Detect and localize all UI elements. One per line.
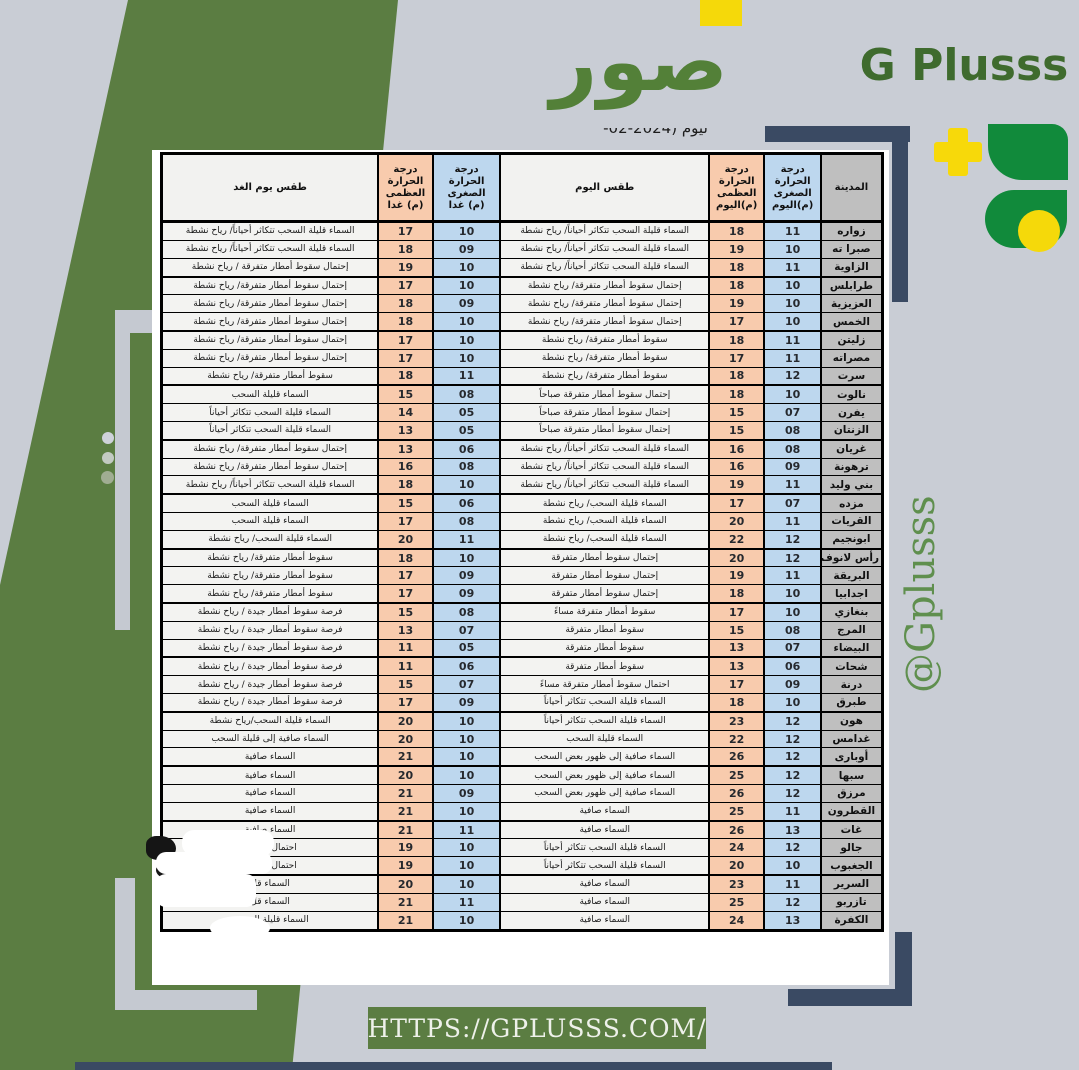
cell-today-weather: سقوط أمطار متفرقة/ رياح نشطة (500, 331, 708, 349)
frame-bracket-bottom-left-h (115, 990, 257, 1010)
cell-today-min: 13 (764, 821, 820, 839)
cell-tomorrow-weather: السماء قليلة السحب تتكاثر أحياناً (162, 421, 379, 439)
cell-today-weather: إحتمال سقوط أمطار متفرقة صباحاً (500, 385, 708, 403)
cell-today-max: 26 (709, 748, 764, 766)
cropped-date-fragment: ليوم (2024-02- (368, 128, 708, 150)
cell-tomorrow-max: 20 (378, 530, 432, 548)
cell-today-max: 18 (709, 277, 764, 295)
deco-dot-3 (101, 471, 114, 484)
cell-tomorrow-min: 09 (433, 585, 501, 603)
cell-tomorrow-max: 21 (378, 893, 432, 911)
cell-tomorrow-weather: فرصة سقوط أمطار جيدة / رياح نشطة (162, 693, 379, 711)
cell-city: المرج (821, 621, 883, 639)
cell-today-min: 10 (764, 585, 820, 603)
cell-tomorrow-weather: السماء قليلة السحب (162, 494, 379, 512)
cell-tomorrow-weather: سقوط أمطار متفرقة/ رياح نشطة (162, 585, 379, 603)
cell-today-weather: السماء قليلة السحب/ رياح نشطة (500, 530, 708, 548)
cell-tomorrow-weather: فرصة سقوط أمطار جيدة / رياح نشطة (162, 657, 379, 675)
header-city: المدينة (821, 154, 883, 222)
cell-today-min: 08 (764, 621, 820, 639)
logo-plus-icon-vertical (948, 128, 968, 176)
cell-tomorrow-weather: السماء قليلة السحب (162, 385, 379, 403)
cell-today-max: 22 (709, 530, 764, 548)
white-eraser-blob-4 (210, 916, 270, 940)
cell-tomorrow-min: 06 (433, 440, 501, 458)
cell-tomorrow-min: 06 (433, 657, 501, 675)
cell-today-max: 25 (709, 893, 764, 911)
cell-today-max: 17 (709, 676, 764, 694)
cell-today-min: 12 (764, 367, 820, 385)
cell-city: البريقة (821, 567, 883, 585)
cell-tomorrow-weather: إحتمال سقوط أمطار متفرقة / رياح نشطة (162, 258, 379, 276)
cell-tomorrow-max: 20 (378, 730, 432, 748)
cell-today-weather: إحتمال سقوط أمطار متفرقة/ رياح نشطة (500, 313, 708, 331)
cell-tomorrow-max: 13 (378, 440, 432, 458)
cell-tomorrow-max: 16 (378, 458, 432, 476)
cell-today-min: 11 (764, 349, 820, 367)
cell-tomorrow-max: 17 (378, 513, 432, 531)
cell-tomorrow-min: 10 (433, 802, 501, 820)
cell-tomorrow-min: 11 (433, 893, 501, 911)
cell-today-min: 08 (764, 440, 820, 458)
table-row: طرابلس 10 18 إحتمال سقوط أمطار متفرقة/ ر… (162, 277, 883, 295)
cell-tomorrow-weather: السماء قليلة السحب تتكاثر أحياناً/ رياح … (162, 476, 379, 494)
cell-today-max: 19 (709, 240, 764, 258)
cell-city: القريات (821, 513, 883, 531)
cell-today-max: 15 (709, 421, 764, 439)
table-row: مرزق 12 26 السماء صافية إلى ظهور بعض الس… (162, 785, 883, 803)
cell-today-max: 24 (709, 839, 764, 857)
cell-today-min: 11 (764, 875, 820, 893)
table-row: السرير 11 23 السماء صافية 10 20 السماء ق… (162, 875, 883, 893)
cell-today-max: 26 (709, 785, 764, 803)
cell-today-weather: السماء قليلة السحب تتكاثر أحياناً/ رياح … (500, 476, 708, 494)
cell-tomorrow-max: 11 (378, 657, 432, 675)
cell-today-weather: إحتمال سقوط أمطار متفرقة/ رياح نشطة (500, 295, 708, 313)
cell-tomorrow-min: 10 (433, 839, 501, 857)
frame-bracket-top-right-v (892, 126, 908, 302)
cell-tomorrow-max: 20 (378, 766, 432, 784)
cell-tomorrow-min: 10 (433, 748, 501, 766)
cell-tomorrow-max: 14 (378, 404, 432, 422)
cell-tomorrow-max: 11 (378, 639, 432, 657)
cell-tomorrow-weather: فرصة سقوط أمطار جيدة / رياح نشطة (162, 603, 379, 621)
cell-tomorrow-min: 10 (433, 911, 501, 930)
cell-tomorrow-weather: السماء صافية (162, 802, 379, 820)
cell-today-min: 11 (764, 222, 820, 241)
cell-today-weather: إحتمال سقوط أمطار متفرقة صباحاً (500, 421, 708, 439)
header-tomorrow-max: درجة الحرارة العظمى (م) غدا (378, 154, 432, 222)
table-row: القطرون 11 25 السماء صافية 10 21 السماء … (162, 802, 883, 820)
cell-tomorrow-min: 09 (433, 295, 501, 313)
cell-city: مصراته (821, 349, 883, 367)
cell-today-weather: السماء صافية إلى ظهور بعض السحب (500, 766, 708, 784)
cell-tomorrow-min: 05 (433, 639, 501, 657)
cell-today-min: 12 (764, 730, 820, 748)
cell-today-min: 07 (764, 494, 820, 512)
cell-tomorrow-min: 05 (433, 404, 501, 422)
cell-today-max: 17 (709, 494, 764, 512)
cell-tomorrow-weather: السماء صافية (162, 766, 379, 784)
cell-today-min: 11 (764, 802, 820, 820)
cell-today-max: 18 (709, 585, 764, 603)
cell-tomorrow-weather: إحتمال سقوط أمطار متفرقة/ رياح نشطة (162, 331, 379, 349)
frame-bracket-bottom-right-h (788, 989, 912, 1006)
cell-today-max: 18 (709, 222, 764, 241)
table-row: البيضاء 07 13 سقوط أمطار متفرقة 05 11 فر… (162, 639, 883, 657)
cell-tomorrow-max: 18 (378, 367, 432, 385)
table-row: العزيزية 10 19 إحتمال سقوط أمطار متفرقة/… (162, 295, 883, 313)
cell-tomorrow-max: 20 (378, 875, 432, 893)
cell-tomorrow-max: 15 (378, 676, 432, 694)
cell-tomorrow-weather: فرصة سقوط أمطار جيدة / رياح نشطة (162, 621, 379, 639)
cell-today-min: 08 (764, 421, 820, 439)
cell-tomorrow-weather: سقوط أمطار متفرقة/ رياح نشطة (162, 367, 379, 385)
cell-tomorrow-min: 10 (433, 730, 501, 748)
cell-tomorrow-min: 05 (433, 421, 501, 439)
cell-tomorrow-max: 17 (378, 567, 432, 585)
table-row: صبرا ته 10 19 السماء قليلة السحب تتكاثر … (162, 240, 883, 258)
cell-tomorrow-min: 07 (433, 621, 501, 639)
cell-today-weather: السماء قليلة السحب تتكاثر أحياناً (500, 839, 708, 857)
cell-tomorrow-max: 17 (378, 277, 432, 295)
cell-today-weather: السماء قليلة السحب تتكاثر أحياناً/ رياح … (500, 440, 708, 458)
cell-today-weather: السماء قليلة السحب/ رياح نشطة (500, 513, 708, 531)
cell-tomorrow-max: 18 (378, 295, 432, 313)
table-row: الزنتان 08 15 إحتمال سقوط أمطار متفرقة ص… (162, 421, 883, 439)
cell-tomorrow-max: 18 (378, 476, 432, 494)
cell-today-weather: سقوط أمطار متفرقة مساءً (500, 603, 708, 621)
cell-today-weather: السماء قليلة السحب/ رياح نشطة (500, 494, 708, 512)
cell-tomorrow-min: 10 (433, 331, 501, 349)
poster-canvas: صور G Plusss @Gplusss ليوم (2024-02- الم… (0, 0, 1079, 1070)
cell-tomorrow-max: 15 (378, 385, 432, 403)
cell-tomorrow-weather: إحتمال سقوط أمطار متفرقة/ رياح نشطة (162, 440, 379, 458)
cell-today-max: 18 (709, 331, 764, 349)
cell-tomorrow-min: 10 (433, 258, 501, 276)
site-word-arabic: صور (558, 22, 728, 104)
table-row: درنة 09 17 احتمال سقوط أمطار متفرقة مساء… (162, 676, 883, 694)
table-row: غدامس 12 22 السماء قليلة السحب 10 20 الس… (162, 730, 883, 748)
cell-tomorrow-min: 08 (433, 385, 501, 403)
cell-tomorrow-max: 18 (378, 313, 432, 331)
cell-today-min: 07 (764, 639, 820, 657)
cell-tomorrow-weather: السماء قليلة السحب/ رياح نشطة (162, 530, 379, 548)
cell-today-min: 11 (764, 567, 820, 585)
cell-today-max: 19 (709, 567, 764, 585)
cell-tomorrow-max: 19 (378, 839, 432, 857)
cell-tomorrow-max: 18 (378, 240, 432, 258)
cell-tomorrow-min: 10 (433, 549, 501, 567)
cell-today-min: 10 (764, 277, 820, 295)
cell-city: الزاوية (821, 258, 883, 276)
header-today-min: درجة الحرارة الصغرى (م)اليوم (764, 154, 820, 222)
cell-tomorrow-max: 17 (378, 222, 432, 241)
frame-bracket-bottom-left-v (115, 878, 135, 1008)
table-row: بنغازي 10 17 سقوط أمطار متفرقة مساءً 08 … (162, 603, 883, 621)
cell-city: بنغازي (821, 603, 883, 621)
cell-tomorrow-max: 21 (378, 785, 432, 803)
table-row: اجدابيا 10 18 إحتمال سقوط أمطار متفرقة 0… (162, 585, 883, 603)
cell-today-max: 19 (709, 476, 764, 494)
deco-dot-2 (102, 452, 114, 464)
cell-today-weather: سقوط أمطار متفرقة (500, 639, 708, 657)
cell-today-weather: السماء قليلة السحب تتكاثر أحياناً/ رياح … (500, 458, 708, 476)
cell-tomorrow-weather: إحتمال سقوط أمطار متفرقة/ رياح نشطة (162, 313, 379, 331)
site-name: G Plusss (850, 40, 1078, 91)
cell-today-max: 18 (709, 258, 764, 276)
cell-today-max: 23 (709, 875, 764, 893)
table-row: ابونجيم 12 22 السماء قليلة السحب/ رياح ن… (162, 530, 883, 548)
cell-tomorrow-weather: السماء قليلة السحب تتكاثر أحياناً (162, 404, 379, 422)
table-row: المرج 08 15 سقوط أمطار متفرقة 07 13 فرصة… (162, 621, 883, 639)
cell-city: سبها (821, 766, 883, 784)
cell-today-min: 10 (764, 385, 820, 403)
header-today-weather: طقس اليوم (500, 154, 708, 222)
cell-tomorrow-weather: السماء قليلة السحب/رياح نشطة (162, 712, 379, 730)
cell-city: سرت (821, 367, 883, 385)
cell-today-max: 20 (709, 857, 764, 875)
cell-today-min: 10 (764, 603, 820, 621)
table-row: البريقة 11 19 إحتمال سقوط أمطار متفرقة 0… (162, 567, 883, 585)
cell-city: اجدابيا (821, 585, 883, 603)
cell-today-weather: إحتمال سقوط أمطار متفرقة (500, 549, 708, 567)
cell-tomorrow-max: 21 (378, 911, 432, 930)
cell-today-weather: السماء قليلة السحب تتكاثر أحياناً/ رياح … (500, 258, 708, 276)
cell-today-weather: السماء صافية (500, 911, 708, 930)
table-row: هون 12 23 السماء قليلة السحب تتكاثر أحيا… (162, 712, 883, 730)
cell-tomorrow-min: 09 (433, 240, 501, 258)
cell-today-min: 10 (764, 240, 820, 258)
weather-table: المدينة درجة الحرارة الصغرى (م)اليوم درج… (160, 152, 884, 932)
cell-tomorrow-min: 07 (433, 676, 501, 694)
table-row: القريات 11 20 السماء قليلة السحب/ رياح ن… (162, 513, 883, 531)
cell-today-weather: إحتمال سقوط أمطار متفرقة (500, 567, 708, 585)
cell-city: رأس لانوف (821, 549, 883, 567)
header-today-max: درجة الحرارة العظمى (م)اليوم (709, 154, 764, 222)
cell-today-max: 13 (709, 639, 764, 657)
cell-tomorrow-weather: إحتمال سقوط أمطار متفرقة/ رياح نشطة (162, 458, 379, 476)
table-row: سرت 12 18 سقوط أمطار متفرقة/ رياح نشطة 1… (162, 367, 883, 385)
cell-today-min: 12 (764, 712, 820, 730)
cell-city: جالو (821, 839, 883, 857)
cell-tomorrow-weather: فرصة سقوط أمطار جيدة / رياح نشطة (162, 639, 379, 657)
weather-table-wrap: المدينة درجة الحرارة الصغرى (م)اليوم درج… (160, 152, 884, 932)
cell-city: السرير (821, 875, 883, 893)
cell-today-weather: سقوط أمطار متفرقة/ رياح نشطة (500, 367, 708, 385)
cell-today-max: 16 (709, 440, 764, 458)
social-handle: @Gplusss (898, 458, 944, 693)
cell-today-min: 12 (764, 748, 820, 766)
cell-city: شحات (821, 657, 883, 675)
logo-yellow-chip (700, 0, 742, 26)
cell-tomorrow-min: 09 (433, 567, 501, 585)
cell-today-min: 10 (764, 295, 820, 313)
white-eraser-blob-3 (156, 874, 256, 907)
cell-today-max: 26 (709, 821, 764, 839)
cell-city: درنة (821, 676, 883, 694)
cell-tomorrow-min: 10 (433, 349, 501, 367)
cell-today-weather: السماء قليلة السحب تتكاثر أحياناً/ رياح … (500, 222, 708, 241)
cell-city: هون (821, 712, 883, 730)
cell-today-min: 11 (764, 331, 820, 349)
cell-tomorrow-min: 06 (433, 494, 501, 512)
cell-today-min: 12 (764, 530, 820, 548)
cell-tomorrow-min: 08 (433, 603, 501, 621)
cell-today-max: 13 (709, 657, 764, 675)
cell-today-min: 11 (764, 258, 820, 276)
cell-today-min: 10 (764, 857, 820, 875)
cell-today-weather: السماء صافية (500, 893, 708, 911)
header-tomorrow-min: درجة الحرارة الصغرى (م) غدا (433, 154, 501, 222)
cell-tomorrow-weather: السماء صافية إلى قليلة السحب (162, 730, 379, 748)
cell-today-max: 25 (709, 766, 764, 784)
table-row: يفرن 07 15 إحتمال سقوط أمطار متفرقة صباح… (162, 404, 883, 422)
cell-tomorrow-max: 17 (378, 693, 432, 711)
cell-city: القطرون (821, 802, 883, 820)
cell-tomorrow-weather: فرصة سقوط أمطار جيدة / رياح نشطة (162, 676, 379, 694)
cell-today-max: 20 (709, 549, 764, 567)
cell-tomorrow-min: 10 (433, 857, 501, 875)
cell-tomorrow-max: 19 (378, 857, 432, 875)
table-row: زليتن 11 18 سقوط أمطار متفرقة/ رياح نشطة… (162, 331, 883, 349)
cell-today-min: 09 (764, 676, 820, 694)
frame-bracket-top-right-h (765, 126, 910, 142)
cell-tomorrow-weather: السماء صافية (162, 785, 379, 803)
cell-today-max: 17 (709, 349, 764, 367)
cell-today-weather: السماء قليلة السحب تتكاثر أحياناً (500, 857, 708, 875)
cell-today-weather: السماء صافية (500, 821, 708, 839)
cell-city: ابونجيم (821, 530, 883, 548)
cell-tomorrow-min: 08 (433, 513, 501, 531)
cell-today-max: 18 (709, 367, 764, 385)
cell-tomorrow-weather: إحتمال سقوط أمطار متفرقة/ رياح نشطة (162, 295, 379, 313)
cell-today-max: 16 (709, 458, 764, 476)
cell-city: بني وليد (821, 476, 883, 494)
cell-today-min: 11 (764, 513, 820, 531)
cell-tomorrow-max: 17 (378, 331, 432, 349)
table-row: زواره 11 18 السماء قليلة السحب تتكاثر أح… (162, 222, 883, 241)
cell-tomorrow-min: 09 (433, 785, 501, 803)
bottom-navy-strip (75, 1062, 832, 1070)
cell-city: زواره (821, 222, 883, 241)
cell-tomorrow-max: 18 (378, 549, 432, 567)
cell-today-max: 18 (709, 385, 764, 403)
cell-today-min: 13 (764, 911, 820, 930)
cell-tomorrow-max: 13 (378, 421, 432, 439)
table-body: زواره 11 18 السماء قليلة السحب تتكاثر أح… (162, 222, 883, 931)
logo-green-shape-top (988, 124, 1068, 180)
frame-bracket-top-left-v (115, 310, 130, 630)
cell-tomorrow-min: 10 (433, 476, 501, 494)
table-row: أوبارى 12 26 السماء صافية إلى ظهور بعض ا… (162, 748, 883, 766)
cell-city: مرزق (821, 785, 883, 803)
header-tomorrow-weather: طقس يوم الغد (162, 154, 379, 222)
cell-city: ترهونة (821, 458, 883, 476)
cell-tomorrow-max: 17 (378, 349, 432, 367)
cell-today-min: 12 (764, 549, 820, 567)
cell-today-max: 23 (709, 712, 764, 730)
cell-today-weather: السماء قليلة السحب تتكاثر أحياناً (500, 712, 708, 730)
table-row: شحات 06 13 سقوط أمطار متفرقة 06 11 فرصة … (162, 657, 883, 675)
table-row: بني وليد 11 19 السماء قليلة السحب تتكاثر… (162, 476, 883, 494)
cell-today-min: 09 (764, 458, 820, 476)
cell-city: الجغبوب (821, 857, 883, 875)
cell-tomorrow-max: 15 (378, 603, 432, 621)
cell-city: أوبارى (821, 748, 883, 766)
cell-today-weather: السماء صافية إلى ظهور بعض السحب (500, 785, 708, 803)
cell-tomorrow-weather: السماء قليلة السحب تتكاثر أحياناً/ رياح … (162, 240, 379, 258)
cell-city: غريان (821, 440, 883, 458)
cell-tomorrow-max: 21 (378, 821, 432, 839)
cell-tomorrow-min: 11 (433, 530, 501, 548)
cell-tomorrow-min: 10 (433, 712, 501, 730)
table-row: رأس لانوف 12 20 إحتمال سقوط أمطار متفرقة… (162, 549, 883, 567)
cell-city: طبرق (821, 693, 883, 711)
cell-today-weather: السماء قليلة السحب تتكاثر أحياناً (500, 693, 708, 711)
cell-tomorrow-min: 10 (433, 875, 501, 893)
cell-city: مزده (821, 494, 883, 512)
deco-dot-1 (102, 432, 114, 444)
cell-today-max: 22 (709, 730, 764, 748)
cell-tomorrow-weather: السماء صافية (162, 748, 379, 766)
cell-today-min: 06 (764, 657, 820, 675)
table-row: طبرق 10 18 السماء قليلة السحب تتكاثر أحي… (162, 693, 883, 711)
cell-city: غات (821, 821, 883, 839)
cell-city: تازربو (821, 893, 883, 911)
cell-today-max: 25 (709, 802, 764, 820)
cell-today-min: 12 (764, 766, 820, 784)
table-row: سبها 12 25 السماء صافية إلى ظهور بعض الس… (162, 766, 883, 784)
table-row: غريان 08 16 السماء قليلة السحب تتكاثر أح… (162, 440, 883, 458)
cell-today-min: 10 (764, 693, 820, 711)
header-row: المدينة درجة الحرارة الصغرى (م)اليوم درج… (162, 154, 883, 222)
cell-tomorrow-min: 10 (433, 222, 501, 241)
cell-tomorrow-min: 10 (433, 766, 501, 784)
cell-today-weather: السماء صافية إلى ظهور بعض السحب (500, 748, 708, 766)
website-url-bar: HTTPS://GPLUSSS.COM/ (368, 1007, 706, 1049)
cell-today-max: 24 (709, 911, 764, 930)
cell-tomorrow-min: 10 (433, 313, 501, 331)
cell-tomorrow-min: 09 (433, 693, 501, 711)
cell-city: صبرا ته (821, 240, 883, 258)
cell-tomorrow-max: 19 (378, 258, 432, 276)
cell-tomorrow-min: 10 (433, 277, 501, 295)
cell-tomorrow-weather: إحتمال سقوط أمطار متفرقة/ رياح نشطة (162, 349, 379, 367)
cell-city: يفرن (821, 404, 883, 422)
cell-today-weather: إحتمال سقوط أمطار متفرقة/ رياح نشطة (500, 277, 708, 295)
cell-tomorrow-min: 11 (433, 821, 501, 839)
cell-today-weather: سقوط أمطار متفرقة (500, 657, 708, 675)
table-row: تازربو 12 25 السماء صافية 11 21 السماء ق… (162, 893, 883, 911)
cell-today-weather: سقوط أمطار متفرقة/ رياح نشطة (500, 349, 708, 367)
cell-today-weather: إحتمال سقوط أمطار متفرقة صباحاً (500, 404, 708, 422)
cell-tomorrow-weather: السماء قليلة السحب (162, 513, 379, 531)
table-row: الزاوية 11 18 السماء قليلة السحب تتكاثر … (162, 258, 883, 276)
cell-tomorrow-max: 13 (378, 621, 432, 639)
cell-tomorrow-max: 21 (378, 802, 432, 820)
cell-today-min: 12 (764, 785, 820, 803)
cell-tomorrow-min: 11 (433, 367, 501, 385)
cell-today-weather: السماء قليلة السحب تتكاثر أحياناً/ رياح … (500, 240, 708, 258)
cell-today-max: 17 (709, 313, 764, 331)
cell-tomorrow-weather: إحتمال سقوط أمطار متفرقة/ رياح نشطة (162, 277, 379, 295)
cell-tomorrow-min: 08 (433, 458, 501, 476)
cell-today-weather: السماء صافية (500, 802, 708, 820)
logo-yellow-dot (1018, 210, 1060, 252)
cell-city: غدامس (821, 730, 883, 748)
cell-today-weather: السماء صافية (500, 875, 708, 893)
